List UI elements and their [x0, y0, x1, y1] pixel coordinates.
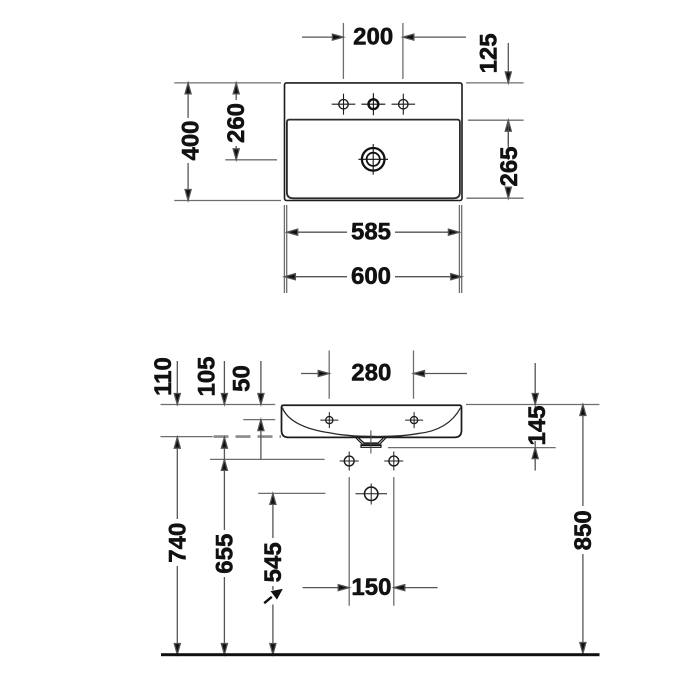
svg-text:50: 50: [229, 365, 256, 392]
svg-text:280: 280: [351, 360, 391, 387]
svg-text:545: 545: [260, 542, 287, 582]
svg-text:585: 585: [351, 218, 391, 245]
svg-text:850: 850: [570, 510, 597, 550]
svg-text:600: 600: [351, 263, 391, 290]
svg-text:740: 740: [164, 523, 191, 563]
svg-text:105: 105: [194, 356, 221, 396]
svg-text:110: 110: [150, 357, 177, 396]
svg-text:200: 200: [353, 23, 393, 50]
svg-text:125: 125: [476, 33, 503, 73]
svg-text:145: 145: [524, 405, 551, 445]
svg-text:265: 265: [496, 146, 523, 186]
svg-text:400: 400: [178, 120, 205, 160]
svg-text:150: 150: [351, 574, 391, 601]
svg-text:655: 655: [211, 534, 238, 574]
svg-text:260: 260: [223, 103, 250, 143]
